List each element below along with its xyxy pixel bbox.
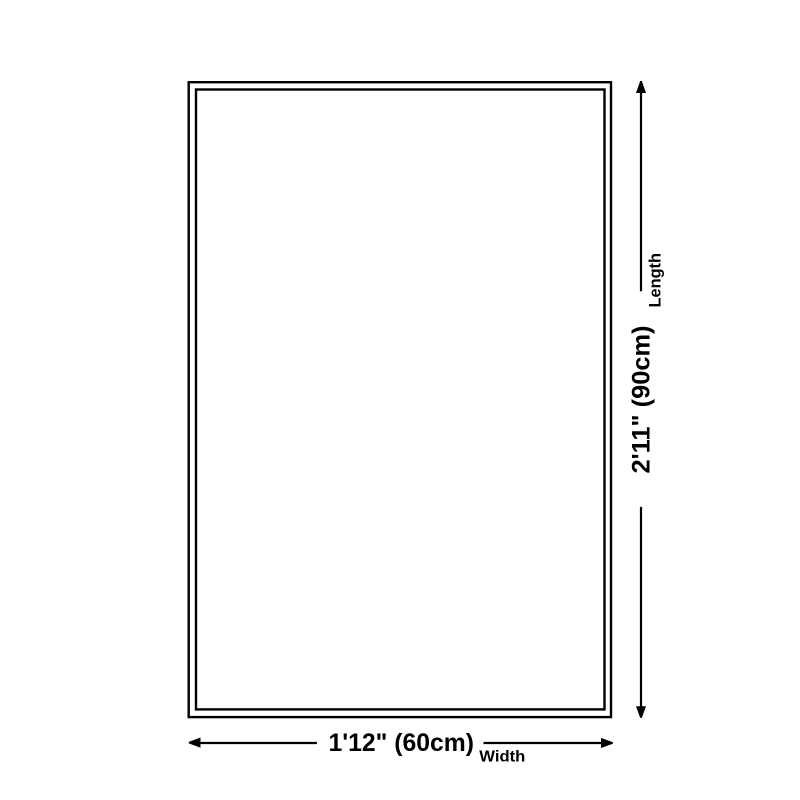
svg-text:Length: Length <box>647 253 665 308</box>
svg-text:1'12" (60cm): 1'12" (60cm) <box>329 730 475 757</box>
svg-text:Width: Width <box>479 748 525 765</box>
svg-text:2'11" (90cm): 2'11" (90cm) <box>628 326 655 474</box>
